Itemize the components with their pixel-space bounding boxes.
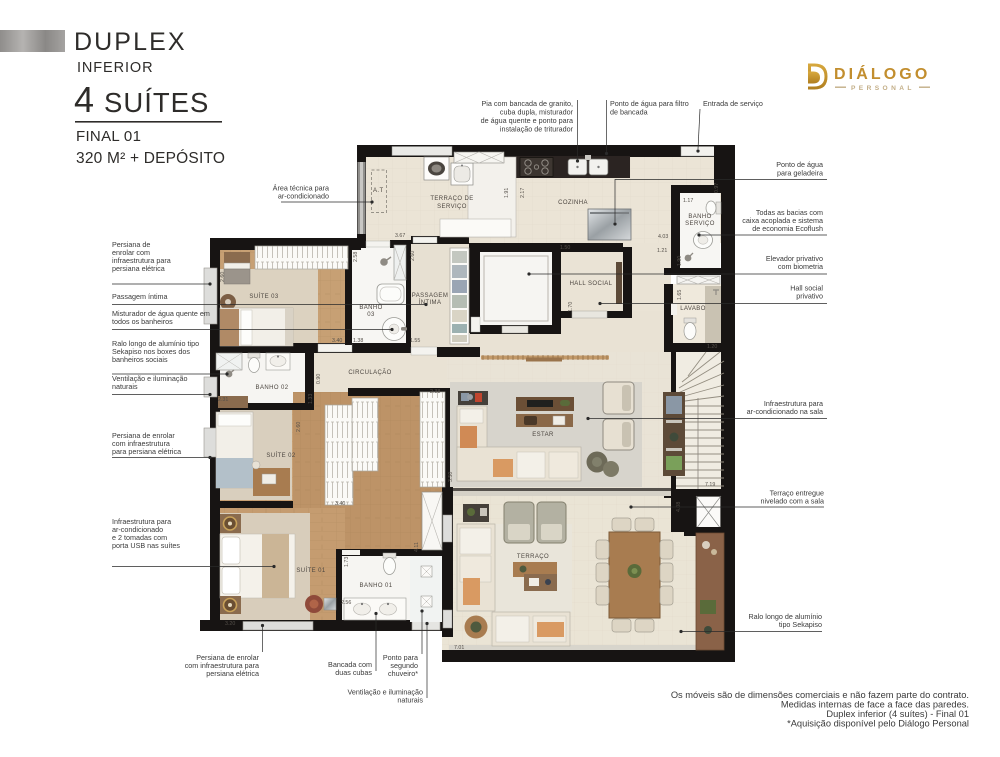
svg-text:ar-condicionado na sala: ar-condicionado na sala bbox=[747, 407, 823, 416]
svg-text:porta USB nas suítes: porta USB nas suítes bbox=[112, 541, 180, 550]
svg-text:03: 03 bbox=[367, 312, 375, 318]
svg-text:2.31: 2.31 bbox=[218, 397, 228, 403]
svg-text:TERRAÇO: TERRAÇO bbox=[517, 554, 549, 560]
svg-text:4 SUÍTES: 4 SUÍTES bbox=[74, 79, 209, 120]
svg-text:1.73: 1.73 bbox=[344, 557, 350, 567]
svg-text:2.60: 2.60 bbox=[410, 251, 416, 261]
svg-text:Passagem íntima: Passagem íntima bbox=[112, 292, 168, 301]
svg-text:1.70: 1.70 bbox=[568, 302, 574, 312]
svg-text:PERSONAL: PERSONAL bbox=[851, 85, 915, 92]
svg-text:instalação de triturador: instalação de triturador bbox=[500, 125, 574, 134]
svg-text:CIRCULAÇÃO: CIRCULAÇÃO bbox=[348, 369, 391, 376]
svg-text:SUÍTE 02: SUÍTE 02 bbox=[266, 452, 295, 459]
svg-text:0.90: 0.90 bbox=[316, 374, 322, 384]
svg-text:A.T: A.T bbox=[373, 188, 384, 194]
svg-text:nivelado com a sala: nivelado com a sala bbox=[760, 497, 824, 506]
svg-text:4.03: 4.03 bbox=[658, 234, 668, 240]
svg-text:TERRAÇO DE: TERRAÇO DE bbox=[430, 196, 473, 202]
svg-text:privativo: privativo bbox=[796, 292, 823, 301]
svg-text:2.56: 2.56 bbox=[341, 600, 351, 606]
svg-text:para persiana elétrica: para persiana elétrica bbox=[112, 447, 181, 456]
svg-text:BANHO 02: BANHO 02 bbox=[256, 385, 289, 391]
svg-text:Entrada de serviço: Entrada de serviço bbox=[703, 99, 763, 108]
svg-text:1.38: 1.38 bbox=[353, 338, 363, 344]
svg-text:Os móveis são de dimensões com: Os móveis são de dimensões comerciais e … bbox=[671, 690, 969, 700]
svg-text:1.50: 1.50 bbox=[560, 245, 570, 251]
svg-text:PASSAGEM: PASSAGEM bbox=[412, 293, 448, 299]
svg-text:1.91: 1.91 bbox=[504, 188, 510, 198]
svg-text:todos os banheiros: todos os banheiros bbox=[112, 317, 173, 326]
svg-text:2.60: 2.60 bbox=[220, 272, 226, 282]
svg-text:1.17: 1.17 bbox=[683, 198, 693, 204]
svg-text:BANHO: BANHO bbox=[688, 214, 711, 220]
svg-text:SERVIÇO: SERVIÇO bbox=[685, 221, 715, 227]
svg-text:1.21: 1.21 bbox=[657, 248, 667, 254]
svg-text:3.67: 3.67 bbox=[395, 233, 405, 239]
svg-text:COZINHA: COZINHA bbox=[558, 200, 588, 206]
svg-text:0.97: 0.97 bbox=[714, 183, 720, 193]
svg-text:2.60: 2.60 bbox=[296, 422, 302, 432]
svg-text:de bancada: de bancada bbox=[610, 108, 648, 117]
svg-text:naturais: naturais bbox=[112, 382, 138, 391]
svg-text:de economia Ecoflush: de economia Ecoflush bbox=[752, 224, 823, 233]
svg-text:com biometria: com biometria bbox=[778, 262, 823, 271]
svg-text:Medidas internas de face a fac: Medidas internas de face a face das pare… bbox=[781, 700, 969, 710]
svg-text:LAVABO: LAVABO bbox=[680, 306, 706, 312]
svg-text:2.17: 2.17 bbox=[520, 188, 526, 198]
svg-text:naturais: naturais bbox=[397, 696, 423, 705]
svg-text:7.19: 7.19 bbox=[705, 482, 715, 488]
svg-text:tipo Sekapiso: tipo Sekapiso bbox=[779, 620, 822, 629]
svg-text:persiana elétrica: persiana elétrica bbox=[206, 669, 259, 678]
svg-text:chuveiro*: chuveiro* bbox=[388, 669, 418, 678]
svg-text:SERVIÇO: SERVIÇO bbox=[437, 204, 467, 210]
svg-text:DIÁLOGO: DIÁLOGO bbox=[834, 64, 930, 83]
svg-text:ESTAR: ESTAR bbox=[532, 432, 554, 438]
svg-text:3.50: 3.50 bbox=[448, 472, 454, 482]
svg-text:banheiros sociais: banheiros sociais bbox=[112, 355, 168, 364]
svg-text:4.11: 4.11 bbox=[414, 542, 420, 552]
svg-text:ÍNTIMA: ÍNTIMA bbox=[419, 299, 442, 306]
svg-text:duas cubas: duas cubas bbox=[335, 668, 372, 677]
svg-text:2.38: 2.38 bbox=[430, 389, 440, 395]
svg-text:3.40: 3.40 bbox=[335, 501, 345, 507]
svg-text:ar-condicionado: ar-condicionado bbox=[278, 192, 329, 201]
svg-text:Duplex inferior (4 suítes) - F: Duplex inferior (4 suítes) - Final 01 bbox=[826, 709, 969, 719]
svg-text:320 M² + DEPÓSITO: 320 M² + DEPÓSITO bbox=[76, 150, 225, 167]
svg-text:1.20: 1.20 bbox=[707, 344, 717, 350]
svg-text:SUÍTE 01: SUÍTE 01 bbox=[296, 567, 325, 574]
svg-text:para geladeira: para geladeira bbox=[777, 169, 823, 178]
svg-text:3.40: 3.40 bbox=[332, 338, 342, 344]
svg-text:3.20: 3.20 bbox=[225, 621, 235, 627]
svg-text:BANHO 01: BANHO 01 bbox=[360, 583, 393, 589]
svg-text:1.65: 1.65 bbox=[677, 290, 683, 300]
svg-text:BANHO: BANHO bbox=[359, 305, 382, 311]
svg-text:FINAL 01: FINAL 01 bbox=[76, 128, 141, 145]
svg-text:INFERIOR: INFERIOR bbox=[77, 60, 153, 76]
svg-text:2.58: 2.58 bbox=[353, 252, 359, 262]
svg-text:*Aquisição disponível pelo Diá: *Aquisição disponível pelo Diálogo Perso… bbox=[787, 719, 969, 729]
svg-text:7.01: 7.01 bbox=[454, 645, 464, 651]
svg-text:1.55: 1.55 bbox=[410, 338, 420, 344]
svg-text:DUPLEX: DUPLEX bbox=[74, 28, 187, 56]
svg-text:HALL SOCIAL: HALL SOCIAL bbox=[570, 281, 613, 287]
svg-text:SUÍTE 03: SUÍTE 03 bbox=[249, 293, 278, 300]
svg-text:persiana elétrica: persiana elétrica bbox=[112, 264, 165, 273]
svg-text:1.90: 1.90 bbox=[677, 256, 683, 266]
svg-text:1.33: 1.33 bbox=[308, 394, 314, 404]
